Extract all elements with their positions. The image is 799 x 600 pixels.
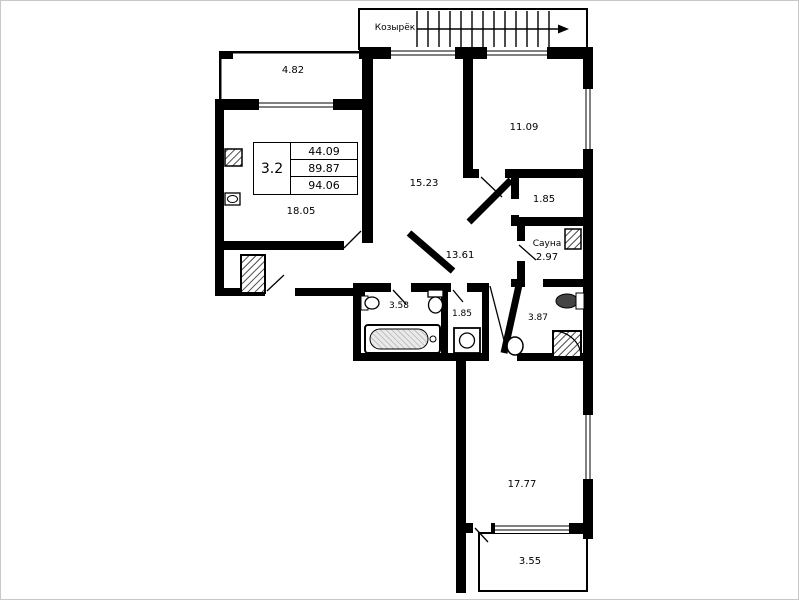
washing-machine-icon (454, 328, 480, 353)
sauna-name-label: Сауна (523, 238, 571, 250)
canopy-label: Козырёк (371, 22, 419, 34)
bedroom-right-area-label: 11.09 (499, 122, 549, 134)
bathroom-sink-icon (361, 296, 379, 310)
shower-icon (553, 331, 581, 357)
bathtub-icon (365, 325, 440, 353)
canopy-stairs-icon (417, 11, 561, 47)
unit-total-area: 94.06 (291, 177, 357, 194)
unit-type: 3.2 (254, 143, 291, 194)
toilet-icon (428, 290, 443, 313)
stairs-direction-arrow-icon (558, 25, 569, 34)
unit-area: 89.87 (291, 160, 357, 177)
bedroom-mid-area-label: 15.23 (399, 178, 449, 190)
kitchen-sink-icon (225, 193, 240, 205)
balcony-bottom-area-label: 3.55 (501, 556, 559, 568)
wc-area-label: 1.85 (446, 308, 478, 320)
balcony-top-area-label: 4.82 (273, 65, 313, 77)
sauna-area-label: 2.97 (523, 252, 571, 264)
bathroom-area-label: 3.58 (381, 300, 417, 312)
shower-room-area-label: 3.87 (517, 312, 559, 324)
floor-plan: 3.2 44.09 89.87 94.06 Козырёк 4.82 18.05… (0, 0, 799, 600)
shower-room-toilet-icon (507, 337, 523, 355)
closet-area-label: 1.85 (524, 194, 564, 206)
unit-info-card: 3.2 44.09 89.87 94.06 (253, 142, 358, 195)
ventilation-shaft (241, 255, 265, 293)
stove-icon (225, 149, 242, 166)
bedroom-bottom-area-label: 17.77 (493, 479, 551, 491)
unit-living-area: 44.09 (291, 143, 357, 160)
hall-area-label: 13.61 (437, 250, 483, 262)
shower-room-sink-icon (556, 293, 584, 309)
kitchen-area-label: 18.05 (276, 206, 326, 218)
